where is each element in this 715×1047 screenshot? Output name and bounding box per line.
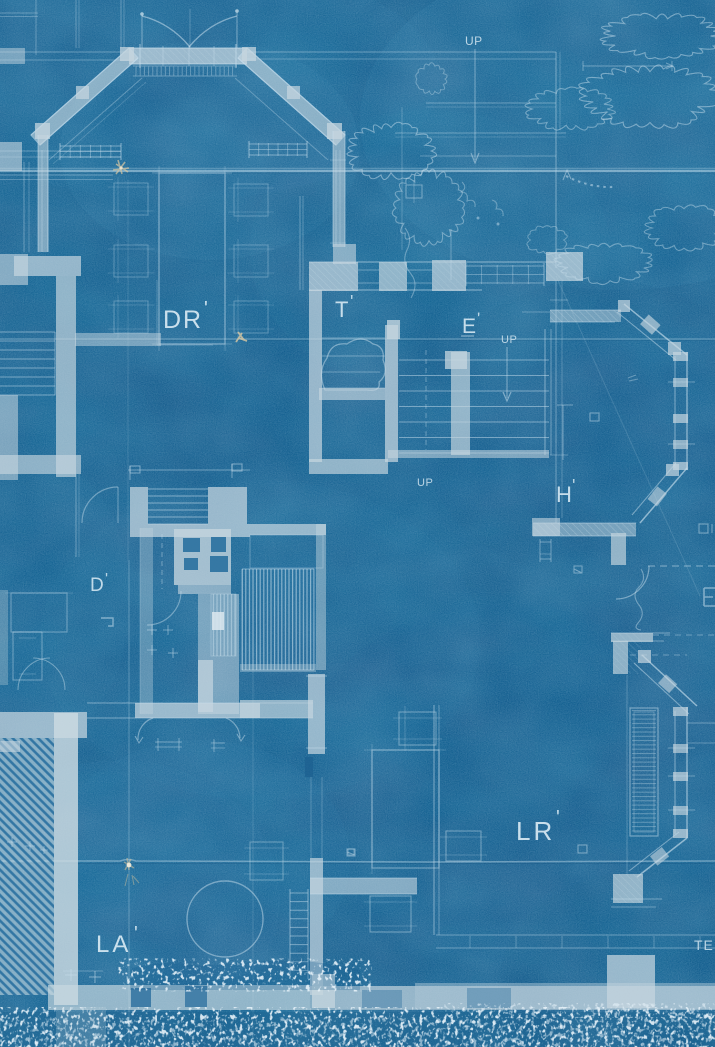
svg-text:UP: UP: [417, 477, 433, 489]
svg-text:': ': [572, 476, 576, 496]
svg-text:': ': [204, 298, 209, 320]
svg-text:': ': [556, 807, 561, 829]
svg-text:LA: LA: [96, 931, 131, 958]
svg-text:UP: UP: [501, 334, 517, 346]
svg-text:E: E: [462, 315, 477, 338]
svg-text:TE: TE: [694, 937, 714, 953]
svg-text:T: T: [335, 297, 349, 322]
svg-text:LR: LR: [516, 816, 555, 846]
svg-text:': ': [134, 923, 139, 945]
svg-text:D: D: [90, 575, 105, 596]
svg-text:H: H: [556, 482, 573, 507]
svg-text:DR: DR: [163, 306, 203, 334]
svg-text:UP: UP: [465, 34, 483, 48]
svg-text:': ': [477, 309, 481, 328]
svg-text:': ': [350, 292, 354, 312]
svg-text:': ': [105, 571, 109, 588]
